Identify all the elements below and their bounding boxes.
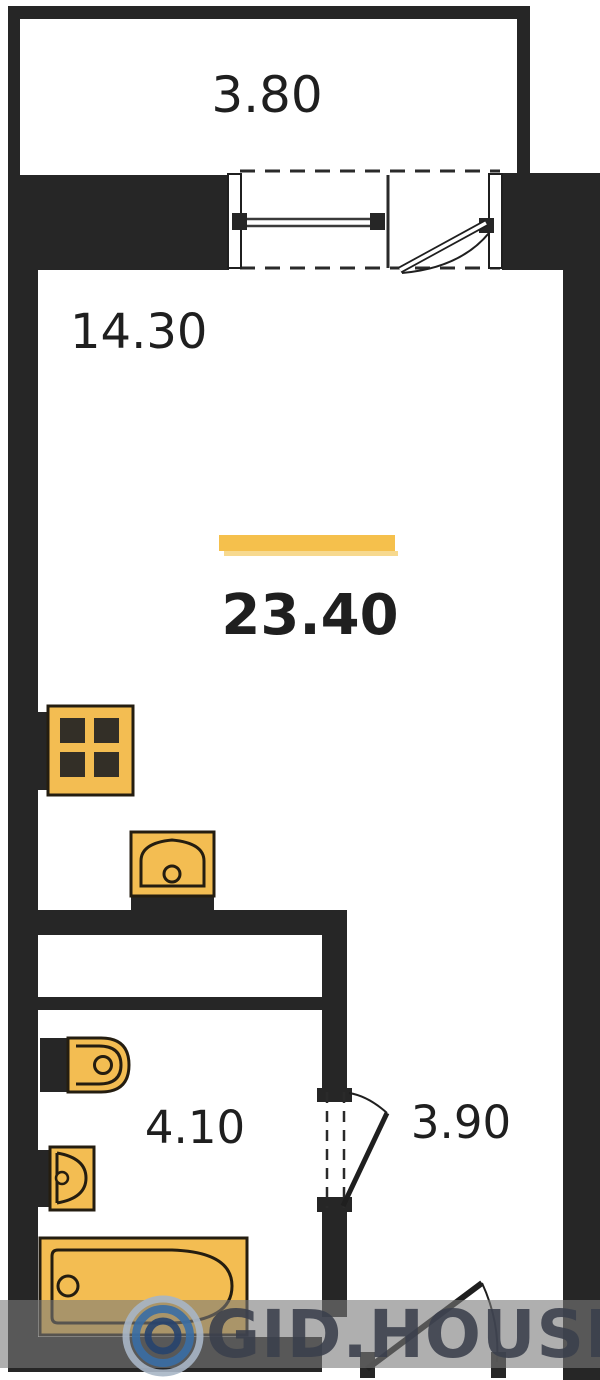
total-area-highlight-bar	[219, 535, 395, 551]
room-area-label: 14.30	[70, 304, 207, 360]
kitchen-sink-icon	[131, 832, 214, 912]
bathroom-door-jamb-top	[317, 1088, 352, 1102]
right-wall	[563, 270, 600, 1380]
stove-burner	[60, 718, 85, 743]
balcony-left-wall	[8, 6, 20, 175]
bathtub-drain	[58, 1276, 78, 1296]
stove-icon	[36, 706, 133, 795]
balcony-window-and-door	[228, 171, 502, 273]
kitchen-wall	[38, 910, 347, 935]
balcony-door-leaf-panel	[400, 223, 486, 270]
floor-plan-svg: 3.80 14.30 23.40 4.10 3.90 GID.HOUSE	[0, 0, 600, 1380]
bathroom-door-leaf	[343, 1113, 387, 1206]
washbasin-backplate	[38, 1150, 50, 1207]
window-terminal-right	[370, 213, 385, 230]
toilet-tank	[40, 1038, 68, 1092]
kitchen-wall-lower	[38, 997, 322, 1010]
window-terminal-left	[232, 213, 247, 230]
bathroom-area-label: 4.10	[145, 1101, 245, 1154]
bathroom-right-wall-upper	[322, 910, 347, 1088]
walls	[8, 6, 600, 1380]
balcony-right-wall	[517, 6, 530, 173]
window-pier-right	[502, 173, 600, 270]
floor-plan-image: 3.80 14.30 23.40 4.10 3.90 GID.HOUSE	[0, 0, 600, 1380]
kitchen-zone	[36, 706, 214, 912]
hall-area-label: 3.90	[411, 1096, 511, 1149]
balcony-area-label: 3.80	[211, 66, 322, 124]
bathroom-zone	[38, 1038, 247, 1335]
balcony-door	[388, 175, 494, 273]
watermark-brand-text: GID.HOUSE	[206, 1296, 600, 1373]
total-area-highlight-shadow	[224, 551, 398, 556]
stove-burner	[60, 752, 85, 777]
washbasin-drain	[56, 1172, 68, 1184]
total-area-label: 23.40	[221, 583, 398, 648]
watermark: GID.HOUSE	[0, 1296, 600, 1373]
window-pier-left	[8, 175, 229, 270]
washbasin-icon	[38, 1147, 94, 1210]
toilet-icon	[40, 1038, 129, 1092]
toilet-drain	[95, 1057, 112, 1074]
bathroom-door	[327, 1092, 387, 1208]
stove-burner	[94, 752, 119, 777]
top-wall	[8, 6, 517, 19]
stove-burner	[94, 718, 119, 743]
left-wall	[8, 175, 38, 1372]
balcony-window	[232, 213, 385, 230]
sink-drain	[164, 866, 180, 882]
bathroom-door-swing-arc	[349, 1093, 387, 1113]
